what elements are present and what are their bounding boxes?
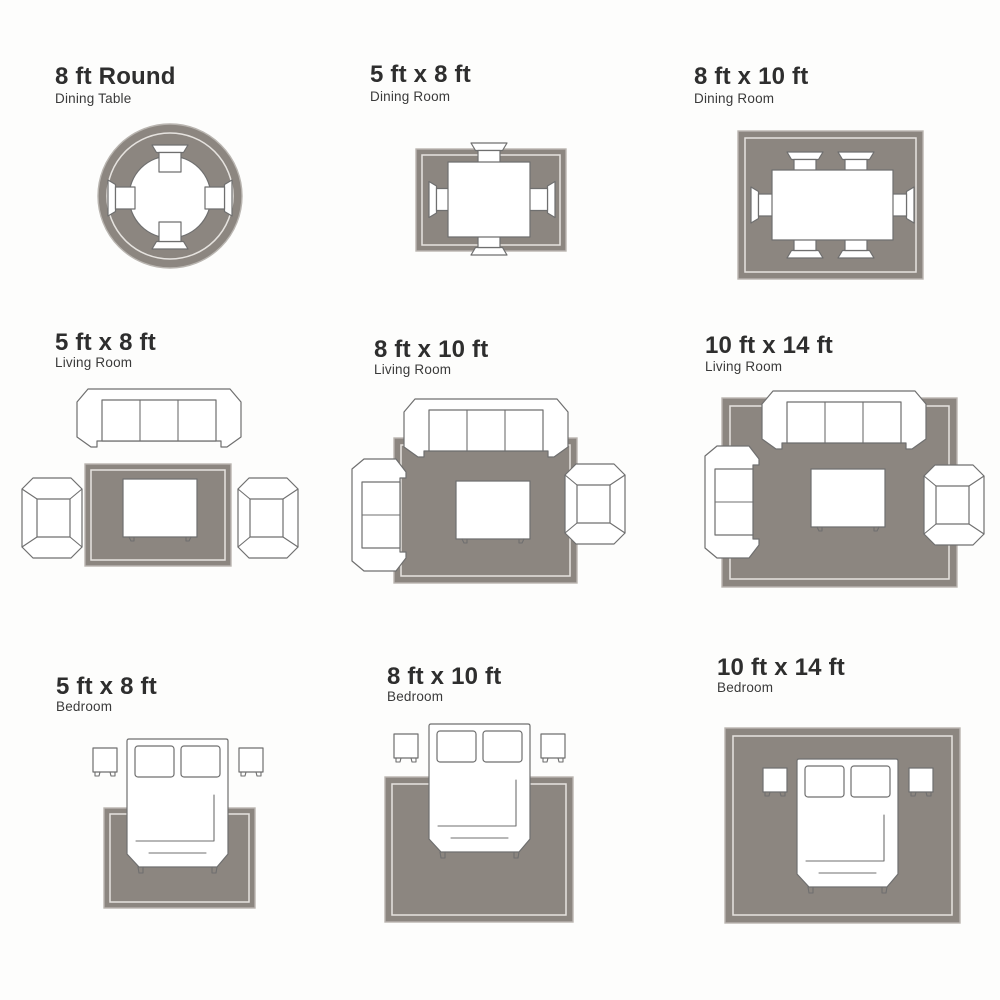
sofa-icon: [762, 391, 926, 449]
dining-table: [448, 162, 530, 237]
panel-title: 8 ft x 10 ft: [374, 337, 488, 363]
loveseat-icon: [352, 459, 406, 571]
scene-dining-8x10: [730, 125, 935, 290]
panel-title: 5 ft x 8 ft: [55, 330, 156, 356]
scene-living-10x14: [695, 380, 995, 595]
panel-subtitle: Living Room: [374, 363, 451, 378]
coffee-table-icon: [811, 469, 885, 531]
scene-living-8x10: [345, 385, 635, 590]
panel-subtitle: Bedroom: [717, 681, 773, 696]
nightstand-icon: [763, 768, 787, 796]
panel-subtitle: Dining Table: [55, 92, 131, 107]
panel-title: 5 ft x 8 ft: [370, 62, 471, 88]
sofa-icon: [77, 389, 241, 447]
sofa-icon: [404, 399, 568, 457]
loveseat-icon: [705, 446, 759, 558]
panel-subtitle: Living Room: [55, 356, 132, 371]
panel-title: 8 ft Round: [55, 64, 176, 90]
nightstand-icon: [909, 768, 933, 796]
bed-icon: [127, 739, 228, 873]
scene-dining-round: [90, 118, 255, 278]
scene-bedroom-8x10: [350, 660, 610, 930]
scene-bedroom-10x14: [700, 700, 980, 935]
nightstand-icon: [93, 748, 117, 776]
coffee-table-icon: [123, 479, 197, 541]
scene-living-5x8: [15, 380, 310, 575]
nightstand-icon: [239, 748, 263, 776]
panel-title: 8 ft x 10 ft: [694, 64, 808, 90]
armchair-icon: [924, 465, 984, 545]
armchair-icon: [22, 478, 82, 558]
scene-dining-5x8: [405, 136, 577, 262]
panel-subtitle: Living Room: [705, 360, 782, 375]
panel-title: 5 ft x 8 ft: [56, 674, 157, 700]
nightstand-icon: [394, 734, 418, 762]
scene-bedroom-5x8: [40, 700, 300, 920]
bed-icon: [797, 759, 898, 893]
panel-subtitle: Dining Room: [370, 90, 450, 105]
armchair-icon: [565, 464, 625, 544]
dining-table: [772, 170, 893, 240]
coffee-table-icon: [456, 481, 530, 543]
nightstand-icon: [541, 734, 565, 762]
armchair-icon: [238, 478, 298, 558]
bed-icon: [429, 724, 530, 858]
panel-subtitle: Dining Room: [694, 92, 774, 107]
panel-title: 10 ft x 14 ft: [705, 333, 833, 359]
rug-size-guide: 8 ft Round Dining Table 5 ft x 8 ft Dini…: [0, 0, 1000, 1000]
panel-title: 10 ft x 14 ft: [717, 655, 845, 681]
